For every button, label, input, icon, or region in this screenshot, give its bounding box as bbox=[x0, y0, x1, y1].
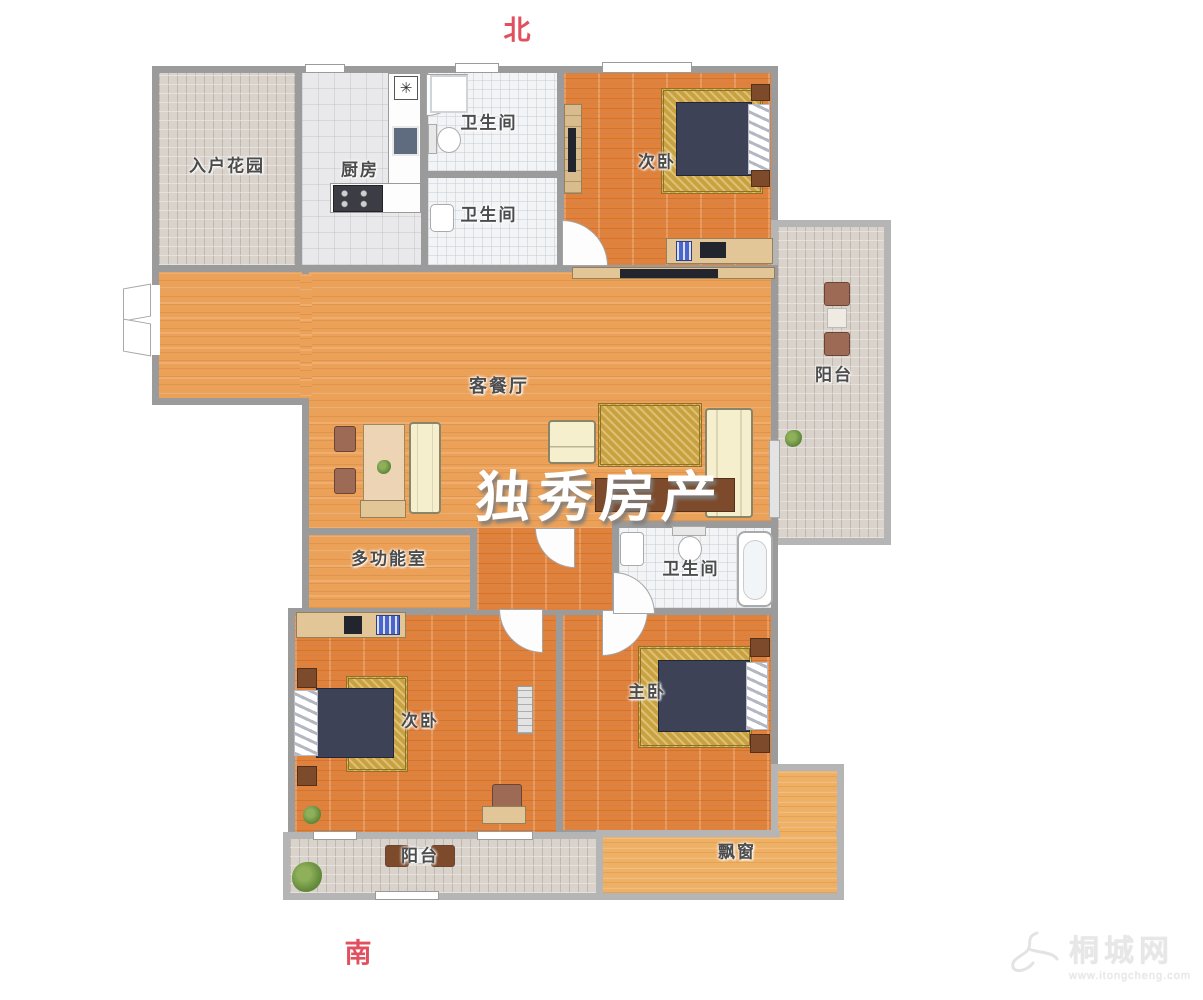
sink bbox=[430, 204, 454, 232]
nightstand bbox=[750, 638, 770, 657]
nightstand bbox=[751, 84, 770, 101]
window-bedroom-sw-2 bbox=[477, 831, 533, 840]
label-bath-north-1: 卫生间 bbox=[461, 109, 518, 134]
room-living-west-wing bbox=[152, 265, 309, 405]
label-bath-master: 卫生间 bbox=[663, 555, 720, 580]
compass-north-label: 北 bbox=[504, 9, 531, 48]
tv bbox=[700, 242, 726, 258]
toilet-bowl bbox=[437, 127, 461, 153]
nightstand bbox=[297, 668, 317, 688]
agency-watermark: 独秀房产 bbox=[473, 452, 727, 532]
bed bbox=[676, 102, 752, 176]
room-multi-function bbox=[302, 528, 477, 615]
shower bbox=[430, 75, 468, 113]
label-kitchen: 厨房 bbox=[341, 156, 379, 181]
books bbox=[676, 241, 692, 261]
window-bedroom-sw-1 bbox=[313, 831, 357, 840]
nightstand bbox=[297, 766, 317, 786]
tv bbox=[620, 269, 718, 278]
bathtub-basin bbox=[743, 540, 767, 600]
appliance-star-icon: ✳ bbox=[394, 76, 418, 100]
balcony-chair bbox=[824, 282, 850, 306]
label-entry-garden: 入户花园 bbox=[189, 152, 265, 177]
dining-chair bbox=[334, 468, 356, 494]
pillow bbox=[746, 662, 768, 730]
logo-text: 桐城网 www.itongcheng.com bbox=[1069, 926, 1191, 982]
radiator bbox=[517, 686, 533, 734]
balcony-door bbox=[769, 440, 780, 518]
compass-south-label: 南 bbox=[345, 932, 372, 971]
stove bbox=[333, 185, 383, 212]
floor-plan: 北 南 ✳ bbox=[0, 0, 1203, 1000]
label-balcony-south: 阳台 bbox=[401, 842, 439, 867]
entry-door-leaf bbox=[123, 319, 151, 357]
label-bay-window: 飘窗 bbox=[718, 838, 756, 863]
label-balcony-east: 阳台 bbox=[815, 361, 853, 386]
entry-opening bbox=[150, 285, 160, 355]
tv bbox=[344, 616, 362, 634]
pillow bbox=[748, 104, 770, 174]
tongcheng-logo: 桐城网 www.itongcheng.com bbox=[1007, 926, 1191, 982]
label-bedroom-ne: 次卧 bbox=[638, 148, 676, 173]
label-bedroom-sw: 次卧 bbox=[401, 707, 439, 732]
logo-url: www.itongcheng.com bbox=[1069, 970, 1191, 982]
bay-floor-join bbox=[780, 826, 836, 838]
label-bath-north-2: 卫生间 bbox=[461, 201, 518, 226]
pillow bbox=[294, 690, 318, 756]
dining-chair bbox=[334, 426, 356, 452]
window-kitchen bbox=[305, 64, 345, 73]
bed bbox=[658, 660, 750, 732]
living-floor-join bbox=[300, 274, 312, 398]
window-bedroom-ne bbox=[602, 62, 692, 73]
label-living-dining: 客餐厅 bbox=[469, 372, 529, 398]
bed bbox=[316, 688, 394, 758]
entry-door-leaf bbox=[123, 284, 151, 322]
side-table bbox=[360, 500, 406, 518]
nightstand bbox=[750, 734, 770, 753]
label-bedroom-master: 主卧 bbox=[628, 678, 666, 703]
logo-mark-icon bbox=[1007, 929, 1063, 979]
side-table bbox=[482, 806, 526, 824]
sink bbox=[620, 532, 644, 566]
toilet-tank bbox=[428, 124, 437, 154]
kitchen-sink bbox=[392, 126, 419, 156]
balcony-chair bbox=[824, 332, 850, 356]
label-multi-function: 多功能室 bbox=[351, 545, 427, 570]
balcony-table bbox=[827, 308, 847, 328]
logo-site-name: 桐城网 bbox=[1069, 926, 1191, 970]
window-balcony-south bbox=[375, 891, 439, 900]
tv bbox=[568, 128, 576, 172]
books bbox=[376, 615, 400, 635]
window-bath-north bbox=[455, 63, 499, 73]
nightstand bbox=[751, 170, 770, 187]
dining-bench bbox=[409, 422, 441, 514]
